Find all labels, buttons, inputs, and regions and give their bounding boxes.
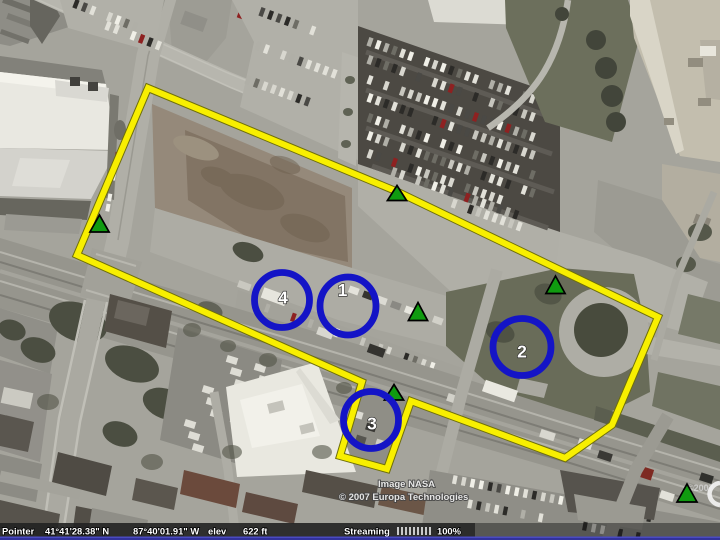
svg-text:© 2007 Europa Technologies: © 2007 Europa Technologies [339, 492, 468, 503]
svg-text:Pointer: Pointer [2, 526, 35, 537]
svg-text:87°40'01.91" W: 87°40'01.91" W [133, 526, 199, 537]
svg-text:Image NASA: Image NASA [378, 479, 435, 490]
svg-text:4: 4 [278, 288, 288, 308]
svg-text:100%: 100% [437, 526, 462, 537]
svg-text:41°41'28.38" N: 41°41'28.38" N [45, 526, 109, 537]
svg-text:622 ft: 622 ft [243, 526, 268, 537]
svg-text:elev: elev [208, 526, 227, 537]
svg-text:1: 1 [338, 280, 348, 300]
svg-text:3: 3 [367, 414, 377, 434]
svg-text:2: 2 [517, 342, 527, 362]
svg-text:Streaming: Streaming [344, 526, 390, 537]
